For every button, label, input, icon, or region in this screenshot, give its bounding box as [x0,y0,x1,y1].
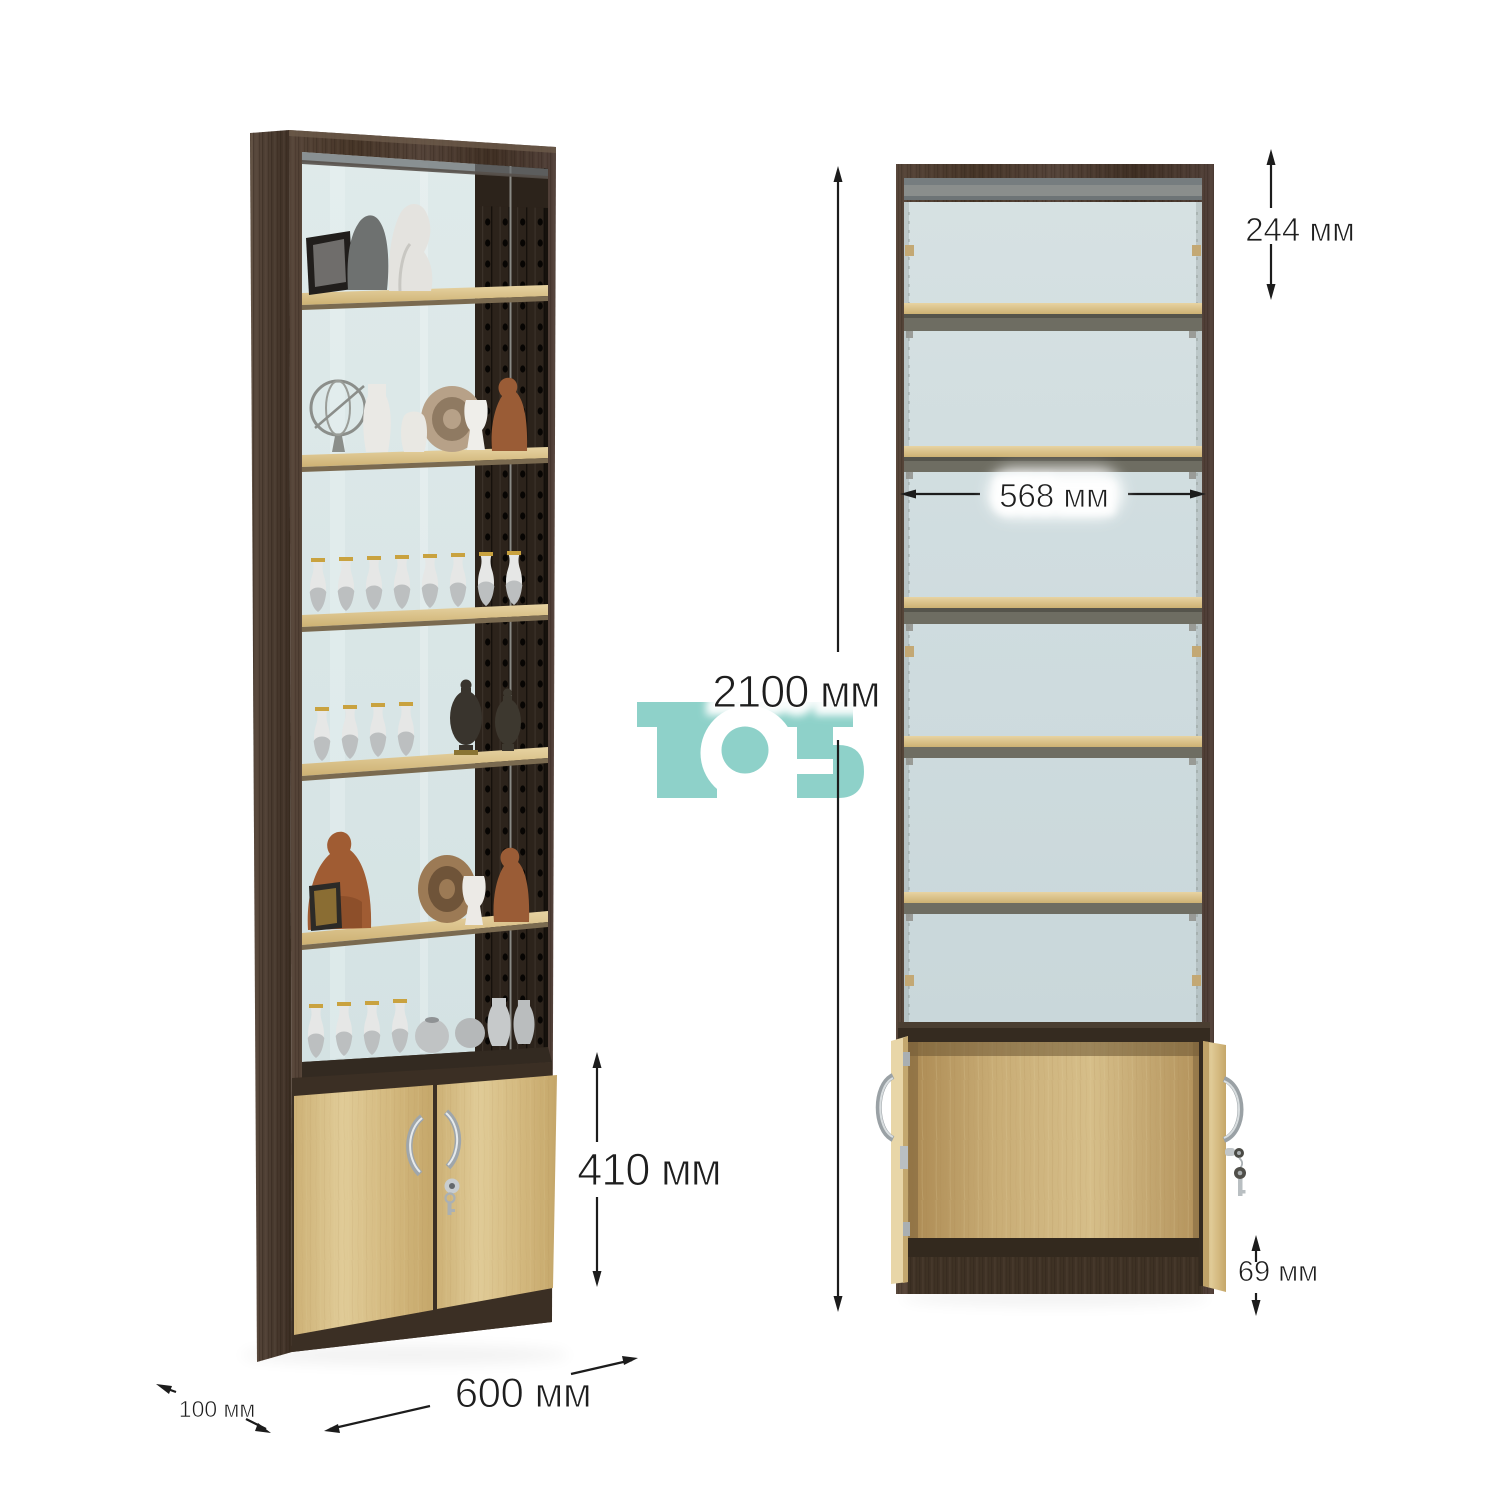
svg-text:244 мм: 244 мм [1245,211,1355,248]
svg-text:100 мм: 100 мм [179,1396,255,1422]
svg-text:69 мм: 69 мм [1238,1256,1318,1288]
svg-text:410 мм: 410 мм [577,1144,720,1195]
svg-text:2100 мм: 2100 мм [712,666,880,717]
svg-text:568 мм: 568 мм [999,477,1109,514]
svg-text:600 мм: 600 мм [455,1369,592,1416]
